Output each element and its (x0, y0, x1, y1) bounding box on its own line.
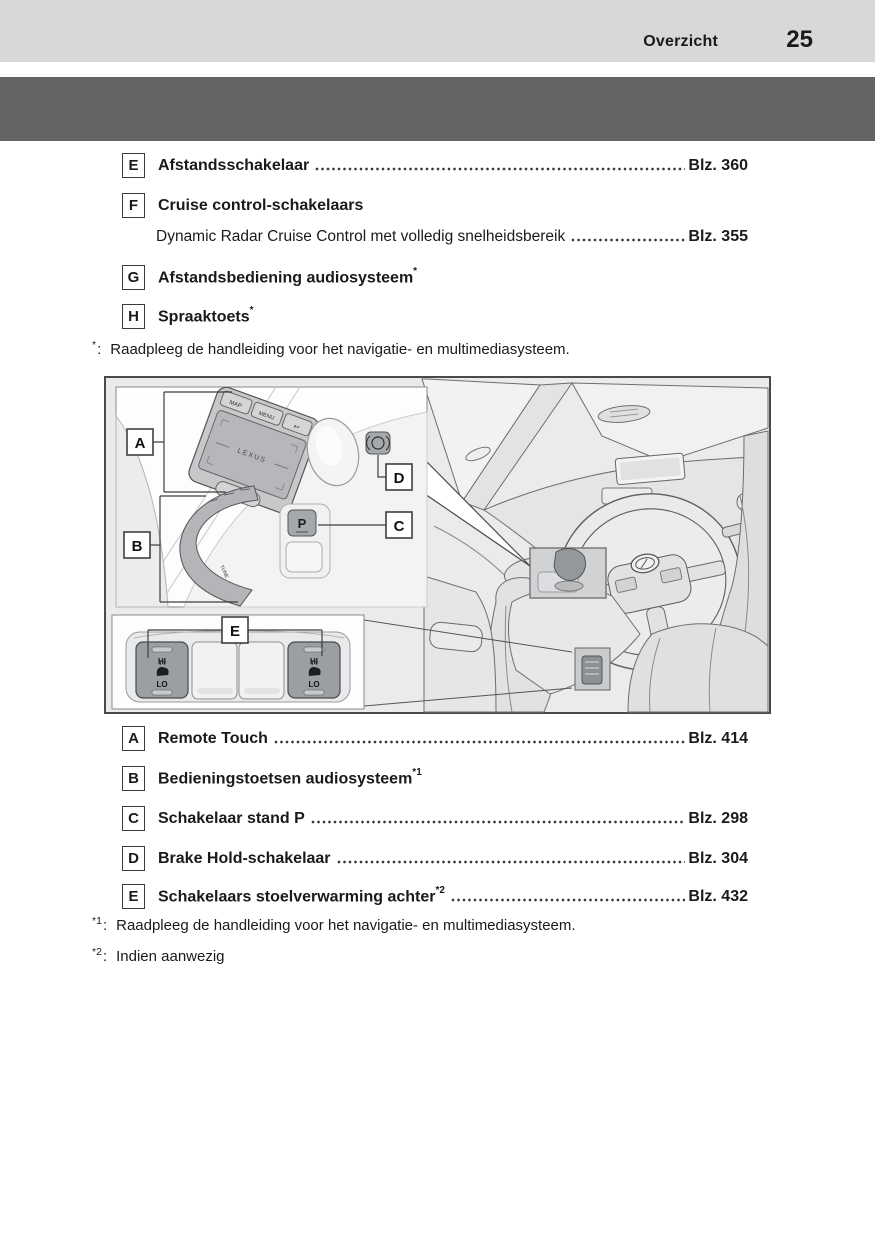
list-item: H Spraaktoets* (122, 304, 748, 329)
footnote-text: Indien aanwezig (116, 948, 224, 965)
item-superscript: *2 (435, 885, 444, 896)
item-key-badge: E (122, 884, 145, 909)
interior-overview-figure: MAP MENU ↩ LEXUS ▲ TUNE P (104, 376, 771, 714)
shifter-highlight-area (530, 548, 606, 598)
shifter-boot (555, 581, 583, 591)
item-label: Cruise control-schakelaars (158, 197, 363, 215)
page-reference: Blz. 304 (688, 850, 748, 868)
page-reference: Blz. 414 (688, 730, 748, 748)
dot-leader (311, 818, 686, 824)
dot-leader (274, 738, 685, 744)
footnote: *2:Indien aanwezig (92, 948, 772, 965)
manual-page: Overzicht 25 E Afstandsschakelaar Blz. 3… (0, 0, 875, 1241)
hi-label: HI (310, 657, 318, 666)
dot-leader (337, 858, 686, 864)
dot-leader (315, 165, 685, 171)
header-title: Overzicht (643, 33, 718, 51)
seat-heater-switch-right: HI LO (288, 642, 340, 698)
callout-c-letter: C (394, 518, 405, 535)
list-item: D Brake Hold-schakelaar Blz. 304 (122, 846, 748, 871)
page-reference: Blz. 298 (688, 810, 748, 828)
rocker-shade (244, 688, 280, 694)
lo-label: LO (308, 680, 319, 689)
indicator-slot (152, 690, 172, 695)
item-label: Remote Touch (158, 730, 268, 748)
park-switch-area: P (280, 504, 330, 578)
list-item: E Schakelaars stoelverwarming achter*2 B… (122, 884, 748, 909)
callout-e-letter: E (230, 623, 240, 640)
center-display (615, 453, 685, 485)
list-item: B Bedieningstoetsen audiosysteem*1 (122, 766, 748, 791)
list-subitem: Dynamic Radar Cruise Control met volledi… (156, 228, 748, 246)
item-superscript: * (413, 266, 417, 277)
item-key-badge: D (122, 846, 145, 871)
list-item: E Afstandsschakelaar Blz. 360 (122, 153, 748, 178)
page-reference: Blz. 432 (688, 888, 748, 906)
rocker-shade (197, 688, 233, 694)
subitem-label: Dynamic Radar Cruise Control met volledi… (156, 228, 565, 246)
footnote: *:Raadpleeg de handleiding voor het navi… (92, 341, 772, 358)
list-item: C Schakelaar stand P Blz. 298 (122, 806, 748, 831)
footnote: *1:Raadpleeg de handleiding voor het nav… (92, 917, 772, 934)
shift-gate (286, 542, 322, 572)
driver-seat (628, 624, 768, 712)
interior-figure-svg: MAP MENU ↩ LEXUS ▲ TUNE P (104, 376, 771, 714)
callout-b-letter: B (132, 538, 143, 555)
indicator-slot (304, 647, 324, 652)
hi-label: HI (158, 657, 166, 666)
brake-hold-switch (366, 432, 390, 454)
item-key-badge: G (122, 265, 145, 290)
page-reference: Blz. 360 (688, 157, 748, 175)
footnote-marker: *1 (92, 915, 102, 927)
callout-a-letter: A (135, 435, 146, 452)
item-key-badge: C (122, 806, 145, 831)
indicator-slot (304, 690, 324, 695)
section-banner (0, 77, 875, 141)
item-superscript: *1 (412, 767, 421, 778)
console-closeup-inset: MAP MENU ↩ LEXUS ▲ TUNE P (116, 385, 427, 607)
item-key-badge: F (122, 193, 145, 218)
item-label: Afstandsbediening audiosysteem* (158, 268, 417, 287)
list-item: G Afstandsbediening audiosysteem* (122, 265, 748, 290)
item-label: Schakelaars stoelverwarming achter*2 (158, 887, 445, 906)
item-key-badge: A (122, 726, 145, 751)
indicator-slot (152, 647, 172, 652)
item-label: Schakelaar stand P (158, 810, 305, 828)
footnote-marker: * (92, 339, 96, 351)
item-label: Afstandsschakelaar (158, 157, 309, 175)
page-reference: Blz. 355 (688, 228, 748, 246)
item-key-badge: H (122, 304, 145, 329)
item-key-badge: B (122, 766, 145, 791)
footnote-text: Raadpleeg de handleiding voor het naviga… (116, 917, 575, 934)
dot-leader (451, 896, 685, 902)
footnote-text: Raadpleeg de handleiding voor het naviga… (110, 341, 569, 358)
footnote-marker: *2 (92, 946, 102, 958)
page-number: 25 (786, 26, 813, 54)
list-item: A Remote Touch Blz. 414 (122, 726, 748, 751)
item-label: Brake Hold-schakelaar (158, 850, 331, 868)
lo-label: LO (156, 680, 167, 689)
item-label: Bedieningstoetsen audiosysteem*1 (158, 769, 422, 788)
seat-heater-switch-left: HI LO (136, 642, 188, 698)
item-superscript: * (250, 305, 254, 316)
item-key-badge: E (122, 153, 145, 178)
park-switch-label: P (298, 516, 307, 531)
shift-lever (554, 549, 586, 581)
dot-leader (571, 236, 685, 242)
callout-d-letter: D (394, 470, 405, 487)
item-label: Spraaktoets* (158, 307, 254, 326)
seat-heater-inset: HI LO HI LO E (112, 615, 364, 709)
list-item: F Cruise control-schakelaars (122, 193, 748, 218)
page-header: Overzicht 25 (0, 0, 875, 62)
